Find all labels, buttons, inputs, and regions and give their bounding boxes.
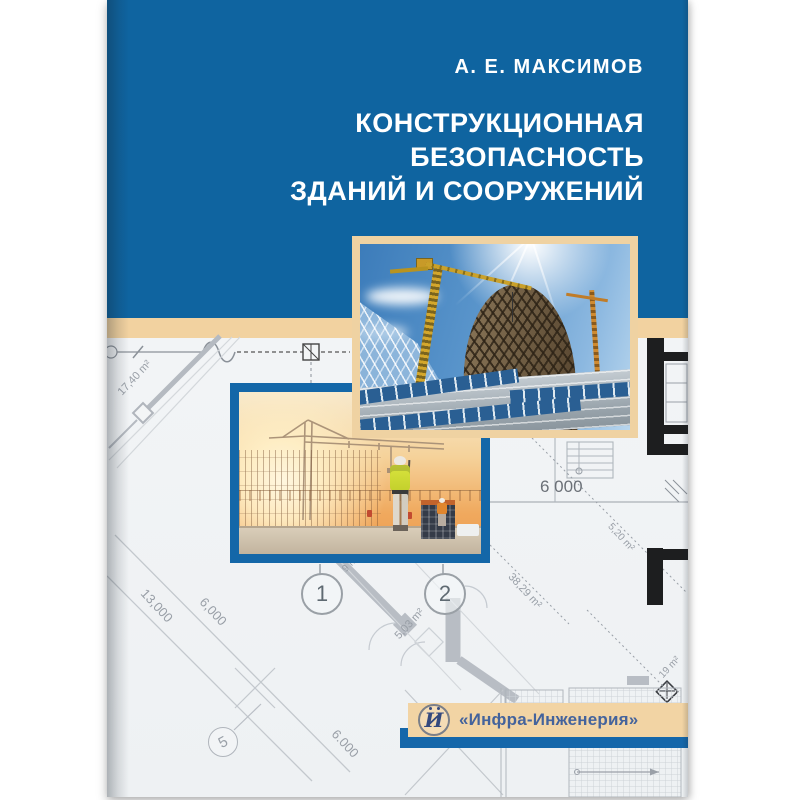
axis-marker-5: 5 <box>208 727 238 757</box>
publisher-logo-letter: И <box>420 708 448 732</box>
red-barrel <box>367 510 372 517</box>
page-background: А. Е. МАКСИМОВ КОНСТРУКЦИОННАЯ БЕЗОПАСНО… <box>0 0 800 800</box>
axis-marker-2-number: 2 <box>439 581 451 607</box>
book-cover: А. Е. МАКСИМОВ КОНСТРУКЦИОННАЯ БЕЗОПАСНО… <box>107 0 688 797</box>
label-dim-6000-horizontal: 6 000 <box>540 477 583 497</box>
axis-marker-5-number: 5 <box>215 733 230 752</box>
rebar-field <box>239 450 381 528</box>
pants <box>438 514 446 526</box>
publisher-logo-icon: И <box>418 704 450 736</box>
boots <box>393 525 408 531</box>
photo-skyscraper-construction <box>352 236 638 438</box>
safety-vest <box>437 503 447 514</box>
axis-marker-1: 1 <box>301 573 343 615</box>
publisher-name: «Инфра-Инженерия» <box>459 710 638 730</box>
publisher-band: И «Инфра-Инженерия» <box>408 703 688 737</box>
white-vehicle <box>457 524 479 536</box>
axis-marker-1-number: 1 <box>316 581 328 607</box>
worker-figure-main <box>385 456 415 540</box>
axis-marker-2: 2 <box>424 573 466 615</box>
pants <box>393 494 408 526</box>
safety-vest <box>390 465 410 491</box>
crane-cable <box>512 292 513 322</box>
helmet <box>394 456 406 465</box>
worker-figure-small <box>435 498 449 528</box>
